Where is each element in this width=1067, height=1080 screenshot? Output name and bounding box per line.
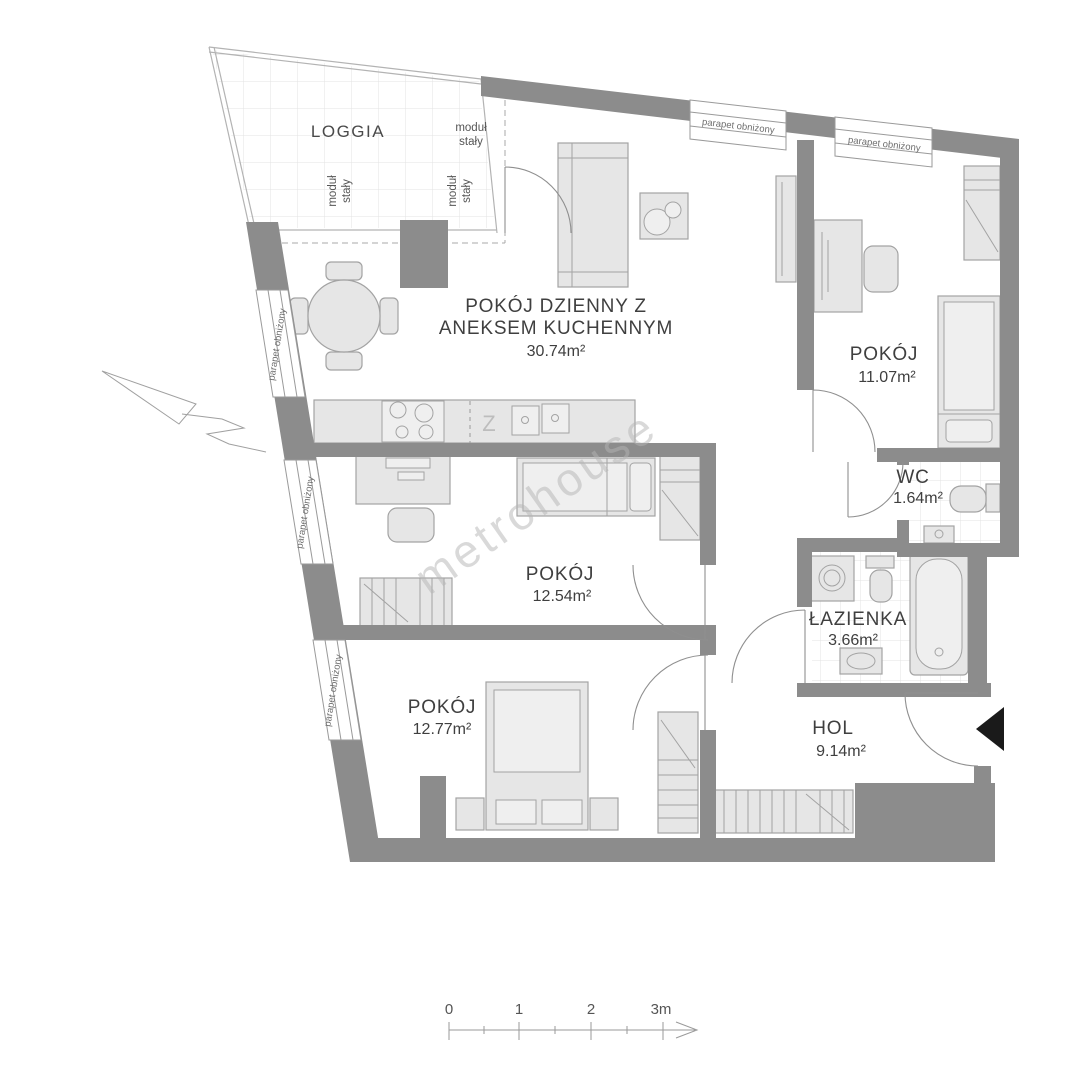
washing-machine <box>810 556 854 601</box>
furniture <box>290 143 1000 833</box>
scale-bar: 0 1 2 3m <box>445 1001 697 1040</box>
bedroom-bottom-name: POKÓJ <box>408 696 476 718</box>
bed-mattress <box>944 302 994 410</box>
module-label-line1: moduł <box>455 122 487 134</box>
bedroom-middle-area: 12.54m² <box>533 588 592 605</box>
hall-name: HOL <box>812 718 853 739</box>
wall-bathroom-bottom <box>797 683 970 697</box>
scale-tick-3: 3m <box>651 1001 672 1018</box>
door-entrance <box>905 693 978 766</box>
wall-bottom-right <box>855 783 995 862</box>
north-arrow-tail <box>182 414 266 452</box>
bed-pillow <box>946 420 992 442</box>
wall-bathroom-left <box>797 552 812 607</box>
bedroom-middle-name: POKÓJ <box>526 563 594 585</box>
scale-bar-ticks <box>449 1022 663 1040</box>
wardrobe <box>660 456 700 540</box>
kitchen-sink <box>542 404 569 433</box>
coffee-table-decor <box>665 202 681 218</box>
wc-sink <box>924 526 954 543</box>
north-arrow <box>102 371 266 452</box>
bed-mattress <box>494 690 580 772</box>
wall-wc-bottom <box>897 543 1019 557</box>
dining-chair <box>326 262 362 280</box>
nightstand <box>456 798 484 830</box>
floor-plan-page: parapet obniżony parapet obniżony parape… <box>0 0 1067 1080</box>
scale-tick-1: 1 <box>515 1001 523 1018</box>
desk-monitor <box>386 458 430 468</box>
scale-tick-0: 0 <box>445 1001 453 1018</box>
toilet-bowl <box>870 570 892 602</box>
entrance-arrow-icon <box>976 707 1004 751</box>
toilet-tank <box>986 484 1000 512</box>
wall-bottom-left <box>350 838 860 862</box>
kitchen-sink <box>512 406 539 435</box>
desk-chair <box>864 246 898 292</box>
desk-chair <box>388 508 434 542</box>
wall-hall-mid <box>700 640 716 655</box>
bed-pillow <box>496 800 536 824</box>
wc-name: WC <box>896 467 929 488</box>
bedroom-top-name: POKÓJ <box>850 343 918 365</box>
desk-item <box>398 472 424 480</box>
bedroom-bottom-area: 12.77m² <box>413 721 472 738</box>
toilet-bowl <box>950 486 986 512</box>
dining-chair <box>380 298 398 334</box>
wall-bathroom-top <box>797 538 909 552</box>
toilet-tank <box>866 556 894 568</box>
module-label-line2: stały <box>341 179 353 203</box>
wall-bedroom-bottom <box>877 448 1019 462</box>
bed-pillow <box>542 800 582 824</box>
wall-entrance-jamb-top <box>974 683 991 697</box>
living-room-name-line1: POKÓJ DZIENNY Z <box>465 295 647 317</box>
door-bathroom <box>732 610 805 683</box>
module-label-line1: moduł <box>327 175 339 207</box>
scale-tick-2: 2 <box>587 1001 595 1018</box>
wc-area: 1.64m² <box>893 490 943 507</box>
north-arrow-head <box>102 371 196 424</box>
wardrobe <box>658 712 698 833</box>
bathroom-area: 3.66m² <box>828 632 878 649</box>
hall-area: 9.14m² <box>816 743 866 760</box>
bathtub-inner <box>916 559 962 669</box>
wall-loggia-pier <box>400 220 448 288</box>
dining-table <box>308 280 380 352</box>
nightstand <box>590 798 618 830</box>
bedroom-top-area: 11.07m² <box>858 369 916 386</box>
wall-hall-upper <box>700 443 716 565</box>
wall-chimney-stub <box>420 776 446 838</box>
kitchen-sink-marker: Z <box>482 411 495 436</box>
wall-hall-lower <box>700 730 716 838</box>
bed-pillow <box>630 463 651 511</box>
stove <box>382 401 444 442</box>
wall-right-upper <box>1000 140 1019 556</box>
wall-middle-room-bottom <box>340 625 716 640</box>
module-label-line1: moduł <box>447 175 459 207</box>
tv-unit <box>776 176 796 282</box>
living-room-area: 30.74m² <box>527 343 586 360</box>
bathroom-sink <box>840 648 882 674</box>
wall-entrance-jamb-bottom <box>974 766 991 786</box>
dining-chair <box>326 352 362 370</box>
module-label-line2: stały <box>459 136 483 148</box>
door-bedroom-top <box>813 390 875 452</box>
scale-bar-line <box>449 1022 697 1038</box>
bathroom-name: ŁAZIENKA <box>809 609 907 630</box>
desk <box>814 220 862 312</box>
living-room-name-line2: ANEKSEM KUCHENNYM <box>439 318 673 339</box>
wall-partition-living-bedroom <box>797 140 814 390</box>
wall-bathroom-right <box>968 545 987 697</box>
module-label-line2: stały <box>461 179 473 203</box>
floor-plan: parapet obniżony parapet obniżony parape… <box>0 0 1067 1080</box>
loggia-name: LOGGIA <box>311 122 385 141</box>
